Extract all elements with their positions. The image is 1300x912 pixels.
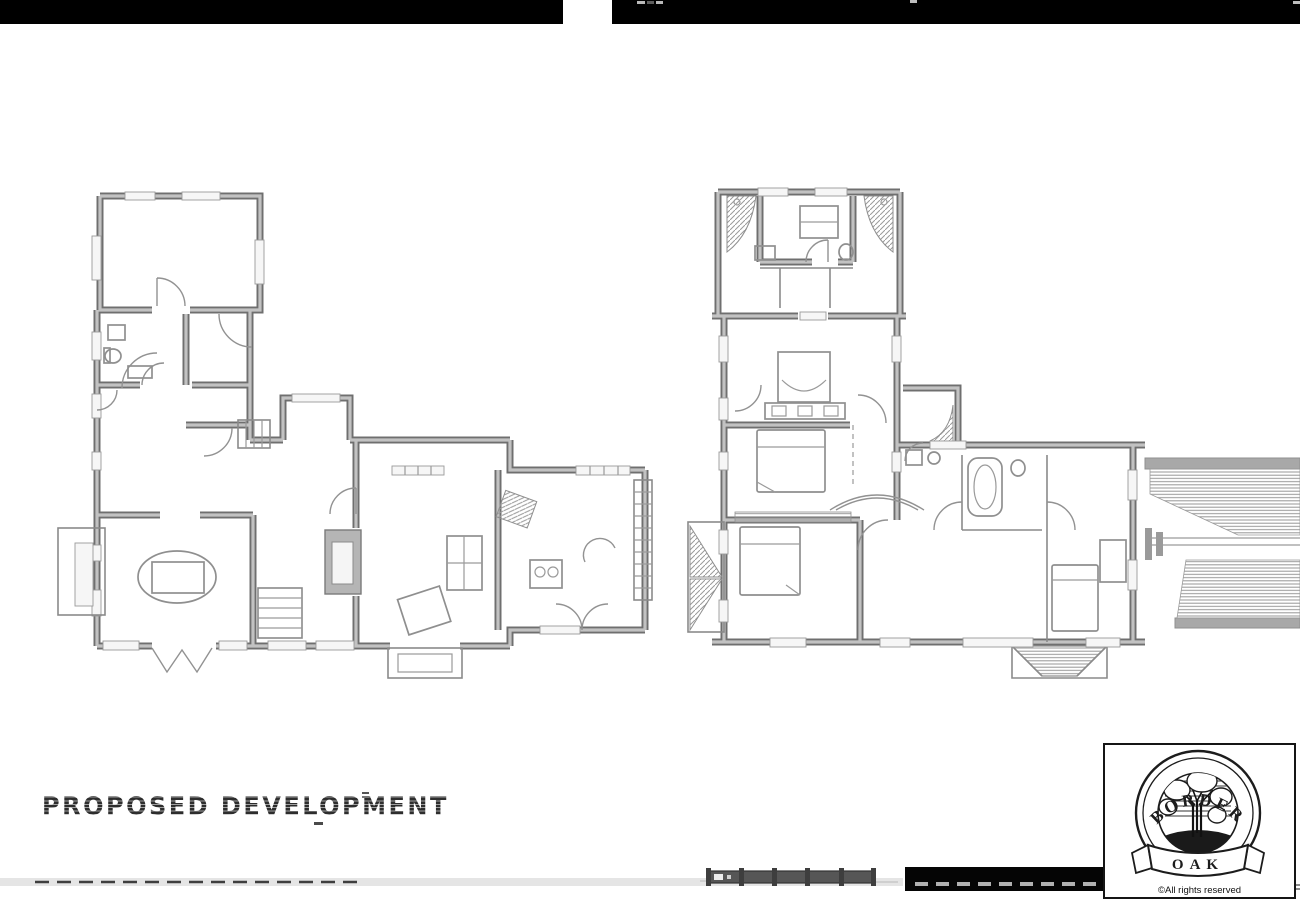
post-mark [1156,532,1163,556]
ground-floor-plan [58,192,652,678]
window-marks [719,188,1137,647]
bedroom2-furniture [740,527,800,595]
pantry-shelves [258,588,302,638]
bathroom-top [755,206,853,308]
logo-banner-text: OAK [1172,857,1224,873]
door-arc [735,385,761,411]
border-oak-logo: BORDER OAK [1105,745,1294,885]
kitchen-rug [398,586,451,635]
roof-hatch-corner [864,196,893,252]
first-floor-plan [688,188,1300,678]
ensuite-box [905,405,953,465]
fireplace [325,530,361,594]
post-mark [1145,528,1152,560]
roof-wing [1145,458,1300,628]
door-arc [858,395,886,423]
dining-table [138,551,216,603]
scan-dash [362,792,369,794]
utility-fixtures [530,538,615,588]
scan-bar-bottom [905,867,1111,891]
double-door-mark [152,648,212,672]
kitchen-island [447,536,482,590]
wc-fixtures [104,325,152,378]
scale-bar [700,868,898,886]
copyright-text: ©All rights reserved [1105,885,1294,896]
roof-hatch-corner [727,196,756,252]
page-title: PROPOSED DEVELOPMENT [42,791,449,820]
door-bay [388,648,462,678]
archway [830,495,924,510]
scan-dash [362,796,369,798]
border-oak-logo-box: BORDER OAK ©All rights reserved [1103,743,1296,899]
hatch-wedge [496,490,537,528]
scan-dash [314,822,323,825]
balustrade-band [735,512,851,522]
porch-bottom [1012,646,1107,678]
